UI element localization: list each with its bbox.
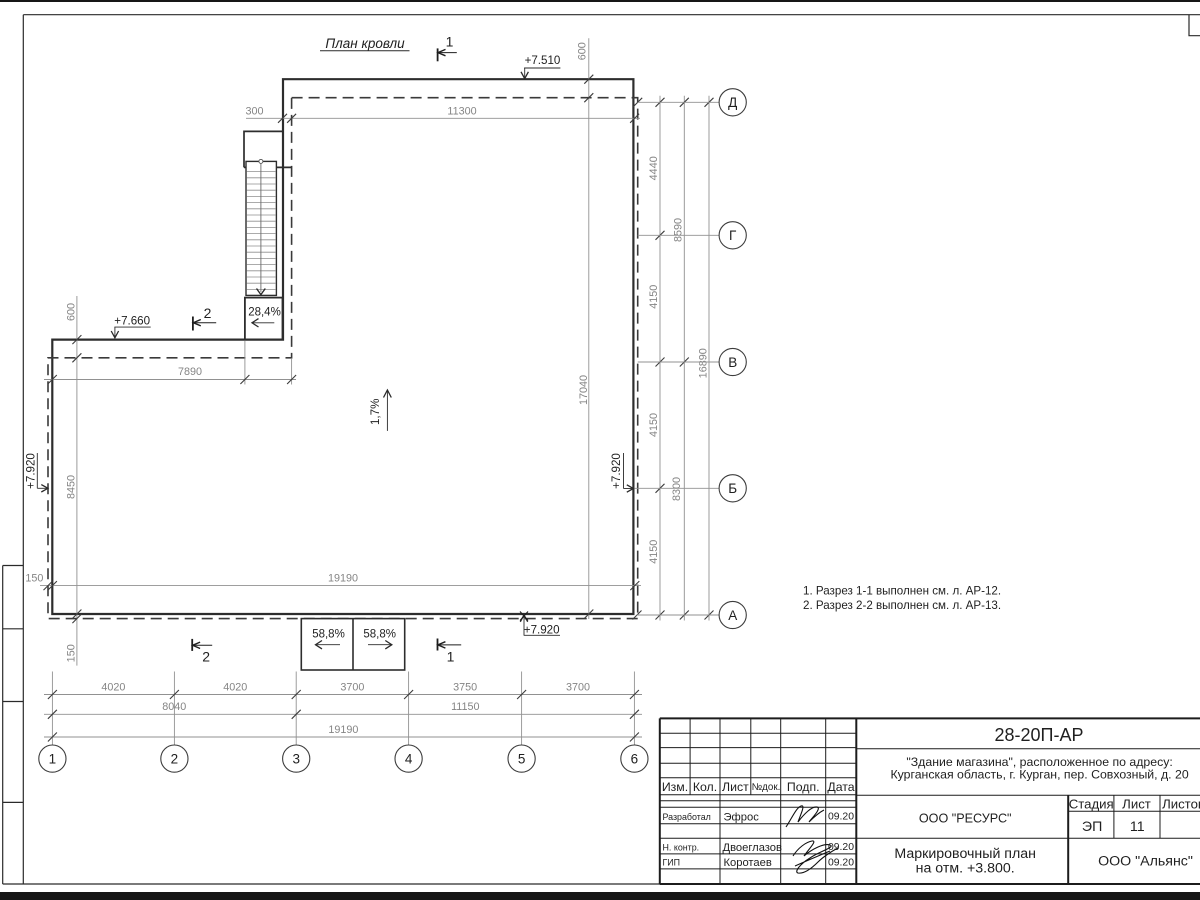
svg-text:8040: 8040 [162,701,186,713]
svg-text:17040: 17040 [578,375,590,405]
svg-text:4150: 4150 [648,413,660,437]
svg-text:28,4%: 28,4% [248,307,281,319]
svg-text:Лист: Лист [722,780,749,794]
svg-text:В: В [728,355,737,370]
svg-text:1,7%: 1,7% [369,399,382,425]
svg-text:2: 2 [171,751,179,766]
svg-text:+7.920: +7.920 [524,624,560,637]
svg-text:Н. контр.: Н. контр. [663,842,700,852]
svg-text:1: 1 [447,648,455,664]
svg-text:Дата: Дата [827,780,854,794]
svg-text:19190: 19190 [328,572,358,584]
svg-text:4020: 4020 [101,681,125,693]
svg-text:58,8%: 58,8% [312,629,345,641]
svg-text:Листов: Листов [1162,797,1200,812]
svg-text:Б: Б [728,481,737,496]
svg-text:8300: 8300 [671,477,683,501]
svg-text:Разработал: Разработал [663,812,711,822]
svg-text:8450: 8450 [65,475,77,499]
svg-text:ООО "РЕСУРС": ООО "РЕСУРС" [919,811,1012,825]
svg-text:11150: 11150 [451,701,479,713]
svg-text:Кол.: Кол. [693,780,717,794]
svg-text:2: 2 [204,305,212,321]
svg-text:ГИП: ГИП [663,858,681,868]
svg-text:Двоеглазов: Двоеглазов [723,842,783,854]
svg-text:ЭП: ЭП [1082,819,1102,835]
svg-text:09.20: 09.20 [828,812,854,823]
svg-text:5: 5 [518,751,526,766]
svg-text:11300: 11300 [447,105,476,117]
svg-text:600: 600 [66,303,78,321]
svg-text:4150: 4150 [648,285,660,309]
svg-text:600: 600 [576,42,588,60]
svg-text:Г: Г [729,228,737,243]
svg-text:1: 1 [446,34,454,50]
svg-text:8590: 8590 [673,218,685,242]
svg-text:3750: 3750 [453,681,477,693]
svg-text:Изм.: Изм. [662,780,688,794]
svg-text:Лист: Лист [1122,797,1151,812]
svg-text:4440: 4440 [648,156,660,180]
svg-text:7890: 7890 [178,366,202,378]
svg-text:+7.920: +7.920 [25,453,38,489]
svg-text:№док.: №док. [752,782,781,793]
svg-text:4150: 4150 [648,540,660,564]
svg-text:4: 4 [405,751,413,766]
svg-text:ООО "Альянс": ООО "Альянс" [1098,854,1193,870]
svg-text:3: 3 [292,751,300,766]
svg-text:3700: 3700 [566,681,590,693]
svg-text:09.20: 09.20 [828,857,854,868]
svg-text:11: 11 [1130,819,1145,835]
svg-text:16890: 16890 [698,348,710,378]
svg-text:300: 300 [245,105,263,117]
svg-text:2: 2 [202,648,210,664]
svg-text:28-20П-АР: 28-20П-АР [995,725,1084,745]
svg-text:А: А [728,608,737,623]
svg-text:+7.660: +7.660 [114,314,150,327]
svg-text:Стадия: Стадия [1069,797,1114,812]
svg-text:+7.920: +7.920 [610,453,623,489]
svg-text:2. Разрез 2-2 выполнен см. л.: 2. Разрез 2-2 выполнен см. л. АР-13. [803,599,1001,612]
svg-text:Курганская область, г. Курган,: Курганская область, г. Курган, пер. Совх… [890,768,1188,782]
svg-text:Эфрос: Эфрос [724,812,760,824]
svg-text:Д: Д [728,95,737,110]
svg-text:150: 150 [25,573,43,585]
svg-text:+7.510: +7.510 [525,54,561,67]
svg-text:Подп.: Подп. [787,780,820,794]
svg-text:19190: 19190 [328,724,358,736]
svg-text:1: 1 [49,751,57,766]
svg-text:Коротаев: Коротаев [724,857,772,869]
svg-text:150: 150 [66,644,78,662]
svg-text:1. Разрез 1-1 выполнен см. л.: 1. Разрез 1-1 выполнен см. л. АР-12. [803,585,1001,598]
svg-text:на отм. +3.800.: на отм. +3.800. [916,860,1015,876]
svg-text:4020: 4020 [223,681,247,693]
svg-text:План кровли: План кровли [325,36,405,51]
svg-text:58,8%: 58,8% [363,629,396,641]
svg-text:6: 6 [631,751,639,766]
svg-text:3700: 3700 [340,681,364,693]
